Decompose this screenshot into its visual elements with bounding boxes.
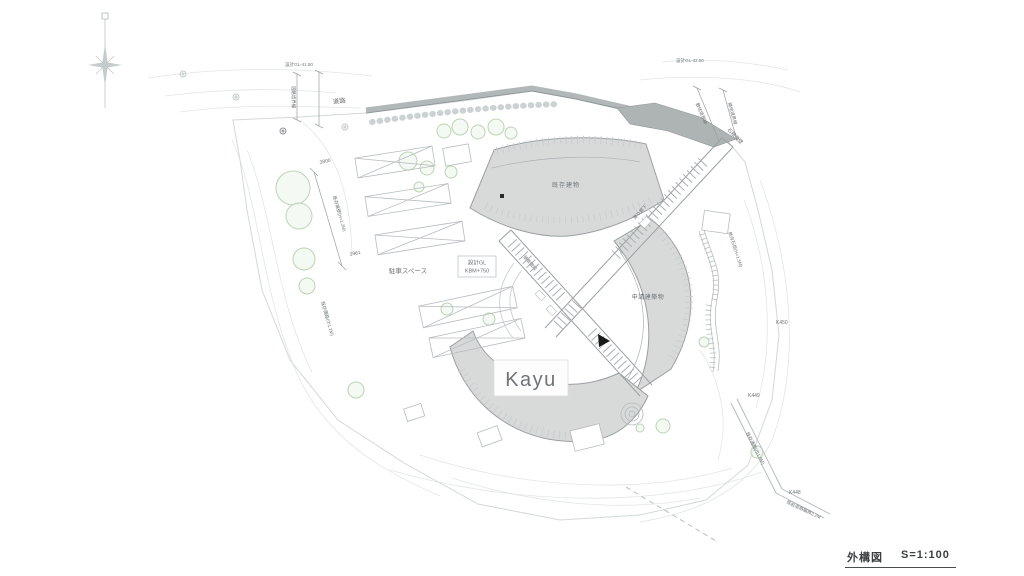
tree	[276, 171, 310, 205]
tree	[656, 419, 670, 433]
tree	[636, 424, 644, 432]
benchmark-k448: K448	[789, 490, 801, 496]
retaining-wall-wedge	[617, 103, 736, 147]
dim-3900: 3900	[319, 158, 331, 166]
road-band	[366, 88, 736, 147]
gl-left-label: 設計GL-41.50	[285, 61, 313, 68]
parking-stall	[365, 184, 451, 217]
boundary-neighbor-label: 隣地境界線	[726, 102, 739, 126]
existing-path-southeast	[626, 399, 830, 541]
north-arrow-icon	[88, 13, 122, 108]
gl-right-label: 設計GL-42.50	[676, 57, 704, 64]
tree	[699, 337, 709, 347]
tree	[348, 382, 364, 398]
drawing-title: 外構図	[847, 549, 883, 565]
parking-stall	[419, 286, 517, 327]
boundary-marker-pins	[180, 71, 348, 134]
design-gl-box: 設計GL KBM+750	[458, 256, 496, 277]
path-left-label: 既存園路(巾1.2M)	[319, 301, 336, 338]
design-gl-line2: KBM+750	[465, 269, 489, 275]
building-middle-fan: 申請建築物	[614, 219, 691, 393]
parking-stall	[375, 221, 465, 255]
column-marker	[500, 194, 504, 198]
site-plan-page: 既存建物 申請建築物 Kayu	[0, 0, 1024, 576]
benchmark-k449: K449	[748, 393, 760, 399]
drawing-scale: S=1:100	[901, 549, 950, 565]
tree	[505, 127, 517, 139]
tree	[452, 119, 468, 135]
boundary-road-label: 道路境界線	[290, 86, 297, 109]
building-top-fan: 既存建物	[470, 138, 664, 237]
wall-left-label: 既存擁壁(H=1.2M)	[331, 195, 348, 233]
building-top-label: 既存建物	[552, 181, 580, 189]
tree	[488, 119, 504, 135]
parking-label: 駐車スペース	[389, 266, 427, 275]
tree	[286, 203, 312, 229]
tree	[471, 125, 485, 139]
annotations: 道路 設計GL-41.50 設計GL-42.50 石積擁壁 敷地境界線 隣地境界…	[285, 57, 822, 521]
tree	[414, 182, 424, 192]
tree	[437, 124, 451, 138]
road-width-label: 既設道路幅員2.2M	[785, 499, 822, 521]
tree	[399, 152, 417, 170]
benchmark-k450: K450	[776, 320, 788, 326]
road-label: 道路	[332, 95, 346, 106]
tree	[299, 278, 315, 294]
existing-stone-label: 既存石垣(H=1.5M)	[726, 231, 744, 269]
site-plan-drawing: 既存建物 申請建築物 Kayu	[0, 0, 1024, 576]
entrance-arrow-marker	[598, 334, 610, 347]
drawing-title-block: 外構図 S=1:100	[845, 549, 956, 568]
slope-path-east	[699, 230, 719, 372]
design-gl-line1: 設計GL	[468, 259, 486, 267]
building-middle-label: 申請建築物	[632, 293, 665, 301]
dim-3961: 3961	[349, 250, 361, 258]
tree	[445, 166, 457, 178]
tree	[441, 303, 453, 315]
kayu-label: Kayu	[505, 369, 557, 391]
tree	[293, 248, 315, 270]
